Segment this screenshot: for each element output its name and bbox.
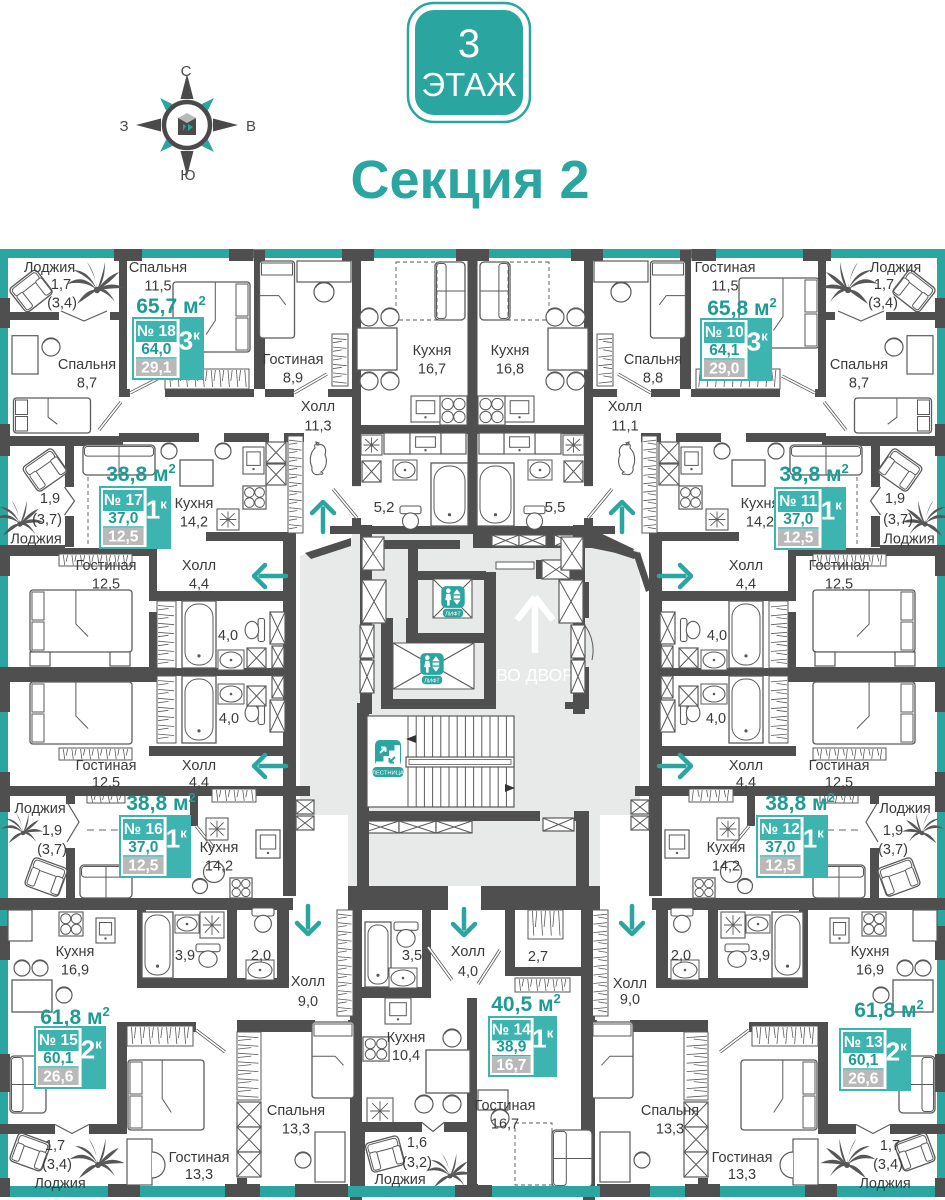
- svg-text:4,4: 4,4: [736, 775, 756, 791]
- svg-text:4,0: 4,0: [458, 964, 478, 980]
- svg-text:1,7: 1,7: [45, 1138, 65, 1154]
- svg-text:Холл: Холл: [613, 976, 647, 992]
- svg-text:Лоджия: Лоджия: [24, 260, 75, 276]
- svg-text:11,1: 11,1: [611, 419, 638, 435]
- svg-text:Кухня: Кухня: [851, 944, 890, 960]
- svg-text:Лоджия: Лоджия: [859, 1176, 910, 1192]
- svg-text:Спальня: Спальня: [267, 1103, 325, 1119]
- svg-text:Холл: Холл: [301, 399, 335, 415]
- svg-text:14,2: 14,2: [746, 515, 774, 531]
- svg-text:12,5: 12,5: [825, 775, 853, 791]
- svg-text:29,1: 29,1: [141, 360, 172, 377]
- svg-text:5,5: 5,5: [545, 499, 566, 516]
- svg-text:8,9: 8,9: [283, 371, 303, 387]
- svg-text:14,2: 14,2: [205, 859, 233, 875]
- svg-text:(3,7): (3,7): [32, 512, 62, 528]
- svg-text:4,0: 4,0: [707, 628, 727, 644]
- svg-text:Гостиная: Гостиная: [76, 558, 137, 574]
- svg-text:Холл: Холл: [182, 758, 216, 774]
- svg-text:Гостиная: Гостиная: [809, 558, 870, 574]
- svg-text:Холл: Холл: [729, 758, 763, 774]
- svg-text:Спальня: Спальня: [830, 357, 888, 373]
- svg-text:11,5: 11,5: [711, 279, 738, 295]
- svg-text:Кухня: Кухня: [741, 496, 780, 512]
- svg-text:26,6: 26,6: [43, 1069, 74, 1086]
- svg-text:Лоджия: Лоджия: [879, 801, 930, 817]
- svg-text:2,0: 2,0: [671, 948, 691, 964]
- svg-text:ЛИФТ: ЛИФТ: [445, 611, 461, 617]
- svg-text:1,7: 1,7: [874, 277, 894, 293]
- svg-text:(3,4): (3,4): [47, 296, 77, 312]
- svg-text:8,8: 8,8: [643, 371, 663, 387]
- svg-text:16,8: 16,8: [496, 362, 524, 378]
- svg-text:№ 12: № 12: [761, 821, 800, 838]
- svg-text:Гостиная: Гостиная: [263, 352, 324, 368]
- svg-text:37,0: 37,0: [128, 839, 158, 856]
- svg-text:16,9: 16,9: [856, 963, 884, 979]
- svg-text:(3,4): (3,4): [868, 296, 898, 312]
- svg-text:10,4: 10,4: [392, 1048, 420, 1064]
- svg-text:38,8 м2: 38,8 м2: [779, 461, 848, 486]
- svg-text:12,5: 12,5: [92, 775, 120, 791]
- svg-text:ЛИФТ: ЛИФТ: [424, 678, 440, 684]
- svg-text:(3,7): (3,7): [37, 842, 67, 858]
- svg-text:1,7: 1,7: [880, 1138, 900, 1154]
- svg-text:1,9: 1,9: [40, 491, 60, 507]
- svg-text:(3,4): (3,4): [42, 1157, 72, 1173]
- svg-text:З: З: [119, 118, 128, 135]
- svg-text:Кухня: Кухня: [707, 840, 746, 856]
- svg-text:40,5 м2: 40,5 м2: [491, 991, 560, 1016]
- svg-text:4,4: 4,4: [736, 577, 756, 593]
- svg-text:12,5: 12,5: [128, 858, 159, 875]
- svg-text:4,0: 4,0: [706, 711, 726, 727]
- svg-text:1,7: 1,7: [51, 277, 71, 293]
- svg-text:2,0: 2,0: [251, 948, 271, 964]
- svg-text:13,3: 13,3: [185, 1167, 213, 1183]
- svg-text:(3,7): (3,7): [883, 512, 913, 528]
- svg-text:4,0: 4,0: [219, 711, 239, 727]
- svg-text:Лоджия: Лоджия: [10, 532, 61, 548]
- svg-text:Холл: Холл: [729, 558, 763, 574]
- svg-text:5,2: 5,2: [374, 499, 395, 516]
- svg-text:14,2: 14,2: [712, 859, 740, 875]
- svg-text:38,8 м2: 38,8 м2: [106, 461, 175, 486]
- svg-text:37,0: 37,0: [108, 510, 138, 527]
- svg-text:13,3: 13,3: [656, 1122, 684, 1138]
- svg-text:64,1: 64,1: [709, 342, 740, 359]
- svg-text:Спальня: Спальня: [129, 260, 187, 276]
- svg-text:61,8 м2: 61,8 м2: [854, 997, 923, 1022]
- svg-text:Гостиная: Гостиная: [475, 1098, 536, 1114]
- svg-text:13,3: 13,3: [282, 1122, 310, 1138]
- svg-text:9,0: 9,0: [298, 994, 318, 1010]
- svg-text:1,6: 1,6: [407, 1135, 427, 1151]
- svg-text:8,7: 8,7: [77, 376, 97, 392]
- svg-text:Гостиная: Гостиная: [169, 1150, 230, 1166]
- svg-text:№ 18: № 18: [137, 323, 176, 340]
- svg-text:60,1: 60,1: [848, 1052, 879, 1069]
- svg-text:37,0: 37,0: [765, 839, 795, 856]
- svg-text:Кухня: Кухня: [56, 944, 95, 960]
- svg-text:Кухня: Кухня: [387, 1030, 426, 1046]
- svg-text:3,5: 3,5: [402, 948, 422, 964]
- svg-text:11,5: 11,5: [144, 279, 171, 295]
- svg-text:12,5: 12,5: [108, 529, 139, 546]
- svg-text:№ 11: № 11: [779, 493, 817, 510]
- svg-text:№ 15: № 15: [39, 1032, 78, 1049]
- svg-text:3,9: 3,9: [750, 948, 770, 964]
- svg-text:4,4: 4,4: [189, 775, 209, 791]
- svg-text:1,9: 1,9: [883, 823, 903, 839]
- svg-text:Кухня: Кухня: [491, 343, 530, 359]
- svg-text:Лоджия: Лоджия: [374, 1172, 425, 1188]
- svg-text:Холл: Холл: [608, 399, 642, 415]
- svg-text:Кухня: Кухня: [413, 343, 452, 359]
- svg-text:Лоджия: Лоджия: [34, 1176, 85, 1192]
- svg-text:37,0: 37,0: [783, 511, 813, 528]
- svg-text:12,5: 12,5: [92, 577, 120, 593]
- svg-text:Спальня: Спальня: [58, 357, 116, 373]
- svg-text:Гостиная: Гостиная: [712, 1150, 773, 1166]
- svg-text:(3,7): (3,7): [878, 842, 908, 858]
- svg-text:12,5: 12,5: [825, 577, 853, 593]
- svg-text:16,7: 16,7: [418, 362, 446, 378]
- svg-text:Спальня: Спальня: [641, 1103, 699, 1119]
- svg-text:Гостиная: Гостиная: [809, 758, 870, 774]
- svg-text:12,5: 12,5: [783, 530, 814, 547]
- svg-text:8,7: 8,7: [849, 376, 869, 392]
- svg-text:№ 13: № 13: [844, 1034, 883, 1051]
- svg-text:65,8 м2: 65,8 м2: [707, 295, 776, 320]
- svg-text:Ю: Ю: [180, 167, 195, 184]
- svg-text:3,9: 3,9: [175, 948, 195, 964]
- svg-text:Гостиная: Гостиная: [76, 758, 137, 774]
- svg-text:4,4: 4,4: [189, 577, 209, 593]
- svg-text:№ 10: № 10: [705, 324, 744, 341]
- svg-text:Секция 2: Секция 2: [351, 150, 590, 210]
- svg-text:№ 17: № 17: [104, 492, 143, 509]
- svg-text:Холл: Холл: [182, 558, 216, 574]
- svg-text:12,5: 12,5: [765, 858, 796, 875]
- svg-text:Лоджия: Лоджия: [14, 801, 65, 817]
- svg-text:4,0: 4,0: [218, 628, 238, 644]
- svg-text:38,8 м2: 38,8 м2: [126, 790, 195, 815]
- svg-text:16,7: 16,7: [496, 1057, 526, 1074]
- svg-text:ВО ДВОР: ВО ДВОР: [496, 665, 574, 685]
- svg-text:С: С: [181, 63, 192, 80]
- svg-text:ЛЕСТНИЦА: ЛЕСТНИЦА: [372, 771, 404, 777]
- svg-text:16,7: 16,7: [491, 1117, 519, 1133]
- svg-text:61,8 м2: 61,8 м2: [40, 1004, 109, 1029]
- svg-text:13,3: 13,3: [728, 1167, 756, 1183]
- svg-text:9,0: 9,0: [620, 992, 640, 1008]
- svg-text:38,8 м2: 38,8 м2: [765, 790, 834, 815]
- svg-text:16,9: 16,9: [61, 963, 89, 979]
- svg-text:11,3: 11,3: [304, 419, 331, 435]
- svg-text:3: 3: [458, 22, 480, 66]
- svg-text:№ 16: № 16: [124, 821, 163, 838]
- svg-text:Кухня: Кухня: [200, 840, 239, 856]
- svg-text:Лоджия: Лоджия: [883, 532, 934, 548]
- svg-text:Лоджия: Лоджия: [870, 260, 921, 276]
- svg-text:(3,4): (3,4): [873, 1157, 903, 1173]
- svg-text:60,1: 60,1: [43, 1050, 74, 1067]
- svg-text:№ 14: № 14: [492, 1022, 531, 1039]
- svg-text:2,7: 2,7: [528, 949, 548, 965]
- svg-text:14,2: 14,2: [180, 515, 208, 531]
- svg-text:Кухня: Кухня: [175, 496, 214, 512]
- svg-text:ЭТАЖ: ЭТАЖ: [421, 66, 517, 103]
- svg-text:38,9: 38,9: [496, 1039, 527, 1056]
- svg-text:1,9: 1,9: [42, 823, 62, 839]
- svg-text:Гостиная: Гостиная: [695, 260, 756, 276]
- svg-text:(3,2): (3,2): [402, 1155, 432, 1171]
- svg-text:Холл: Холл: [291, 974, 325, 990]
- svg-text:65,7 м2: 65,7 м2: [136, 293, 205, 318]
- svg-text:Холл: Холл: [451, 944, 485, 960]
- svg-text:29,0: 29,0: [709, 361, 739, 378]
- svg-text:26,6: 26,6: [848, 1071, 879, 1088]
- svg-text:Спальня: Спальня: [624, 352, 682, 368]
- svg-text:В: В: [246, 118, 256, 135]
- svg-text:1,9: 1,9: [885, 491, 905, 507]
- svg-text:64,0: 64,0: [141, 341, 171, 358]
